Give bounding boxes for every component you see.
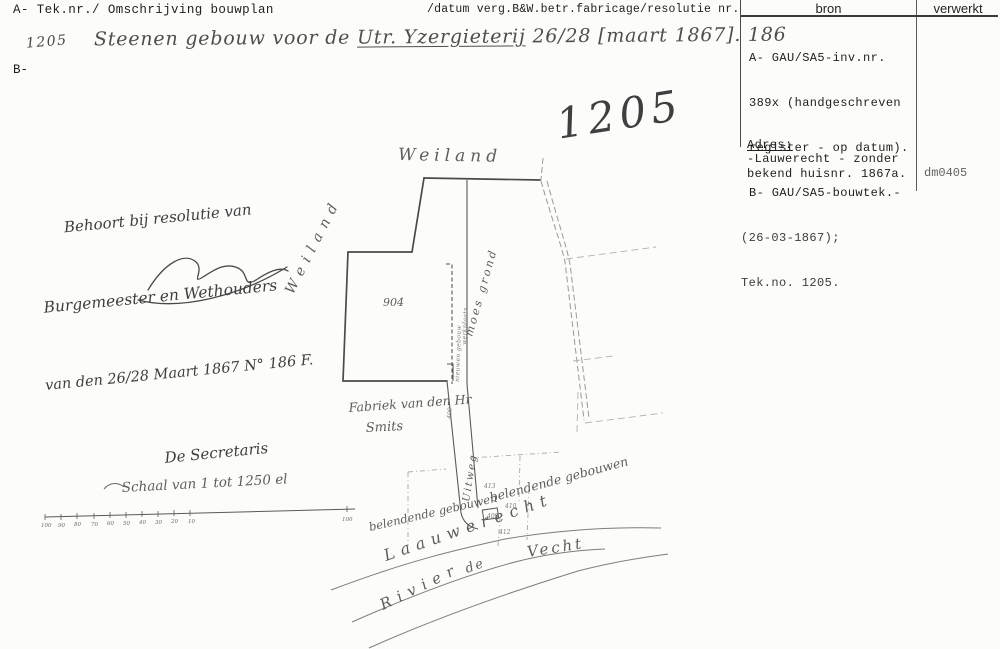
label-weiland-top: Weiland <box>398 145 502 167</box>
label-strip-2: werkplaats <box>461 307 469 345</box>
label-vecht: Vecht <box>526 534 586 561</box>
scanned-bouwplan-record: Schaal van 1 tot 1250 el 100 90 80 70 60… <box>0 0 1000 649</box>
omschrijving-part3: 26/28 [maart 1867]. 186 <box>526 24 787 48</box>
label-plot-413: 413 <box>483 483 496 490</box>
omschrijving-part2: Utr. Yzergieterij <box>357 25 526 48</box>
verwerkt-code: dm0405 <box>924 166 967 180</box>
adres-line: -Lauwerecht - zonder <box>747 152 899 166</box>
note-line: Behoort bij resolutie van <box>63 192 300 240</box>
bron-line: B- GAU/SA5-bouwtek.- <box>749 186 909 201</box>
label-fabriek-1: Fabriek van den Hr <box>347 391 473 415</box>
header-right: /datum verg.B&W.betr.fabricage/resolutie… <box>427 3 739 16</box>
label-plot-409: 409 <box>486 513 499 520</box>
parcel-outline <box>343 178 540 381</box>
label-belendende-right: belendende gebouwen <box>488 453 630 504</box>
b-prefix: B- <box>13 63 28 77</box>
bron-line: Tek.no. 1205. <box>741 276 909 291</box>
note-line: van den 26/28 Maart 1867 N° 186 F. <box>44 347 315 399</box>
road-right-lines <box>541 158 589 420</box>
label-fabriek-2: Smits <box>365 419 403 436</box>
omschrijving-part1: Steenen gebouw voor de <box>94 27 357 51</box>
note-signoff: De Secretaris <box>163 430 322 471</box>
bron-line: (26-03-1867); <box>741 231 909 246</box>
column-header-verwerkt: verwerkt <box>917 1 999 16</box>
table-divider <box>916 0 917 191</box>
label-plot-410: 410 <box>504 503 517 510</box>
scale-tick: 100 <box>41 523 52 529</box>
resolution-note: Behoort bij resolutie van Burgemeester e… <box>24 140 327 533</box>
label-plot-412: 412 <box>498 529 511 536</box>
label-lane-409: 409 <box>446 407 454 420</box>
scale-end-label: 100 <box>342 517 353 523</box>
label-parcel-904: 904 <box>383 296 404 309</box>
bron-line: 389x (handgeschreven <box>749 96 909 111</box>
column-header-bron: bron <box>741 1 916 16</box>
bron-line: A- GAU/SA5-inv.nr. <box>749 51 909 66</box>
table-border-left <box>740 0 741 147</box>
adres-line: bekend huisnr. 1867a. <box>747 167 907 181</box>
neighbour-boundaries <box>566 247 663 432</box>
note-line: Burgemeester en Wethouders <box>42 270 307 321</box>
label-rivier: Rivier <box>376 559 463 614</box>
header-left: A- Tek.nr./ Omschrijving bouwplan <box>13 3 274 17</box>
adres-heading: Adres: <box>747 138 793 152</box>
label-de: de <box>463 556 487 577</box>
